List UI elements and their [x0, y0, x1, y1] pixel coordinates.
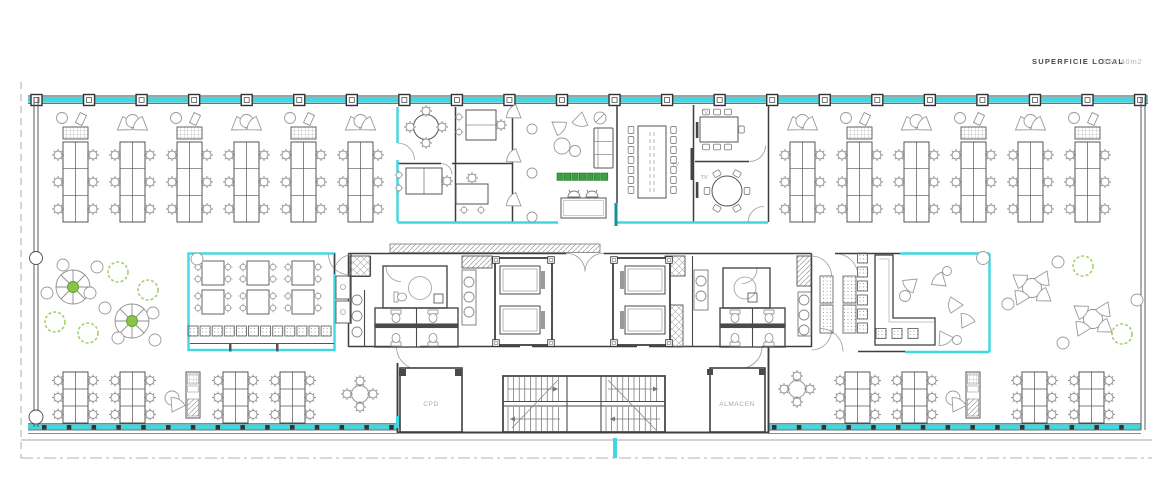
room-label-cpd: CPD [423, 401, 439, 408]
shaft [797, 256, 811, 286]
shaft [462, 256, 492, 268]
lounge [505, 103, 613, 222]
sofa [594, 128, 613, 168]
tv-label: TV [701, 110, 708, 116]
room-cpd [400, 368, 462, 432]
room-label-almacen: ALMACEN [719, 401, 755, 408]
stairs [503, 376, 665, 432]
meeting-room-round: TV [696, 170, 750, 213]
elevator-bank-right [611, 257, 673, 347]
core [349, 244, 812, 347]
tv-label: TV [672, 162, 679, 168]
high-table [561, 190, 606, 218]
private-offices [395, 105, 507, 214]
elevator-bank-left [493, 257, 555, 347]
office-desk [456, 184, 488, 204]
canopy-hatch [390, 244, 600, 253]
meeting-room-large: TV [628, 126, 693, 198]
shelving [820, 305, 833, 333]
floor-plan-drawing: TV TV TV [0, 0, 1160, 493]
area-value: : 950,40m2 [1097, 57, 1143, 66]
tv-screen [696, 182, 699, 198]
wc-right [693, 256, 812, 347]
planter-green [557, 173, 608, 180]
office-round-table [414, 115, 439, 140]
tv-label: TV [701, 175, 708, 181]
room-almacen [710, 368, 765, 432]
turning-circle [409, 277, 432, 300]
vending-machine [336, 301, 350, 323]
turning-circle [734, 277, 756, 299]
facade-north [28, 95, 1148, 106]
cafeteria [188, 254, 351, 352]
tv-screen [696, 122, 699, 138]
shaft [350, 256, 370, 276]
sink [748, 293, 757, 302]
wall-west [29, 97, 43, 427]
shelving [843, 305, 856, 333]
shelving [843, 276, 856, 303]
shelving [820, 276, 833, 303]
tv-screen [691, 148, 694, 180]
coffee-table [554, 138, 570, 154]
vending-machine [336, 276, 350, 299]
floor-plan-page: TV TV TV [0, 0, 1160, 493]
sink [434, 294, 443, 303]
back-of-house: CPD ALMACEN [399, 368, 765, 432]
meeting-room-8p: TV [696, 109, 745, 150]
wall-east [1141, 97, 1145, 430]
